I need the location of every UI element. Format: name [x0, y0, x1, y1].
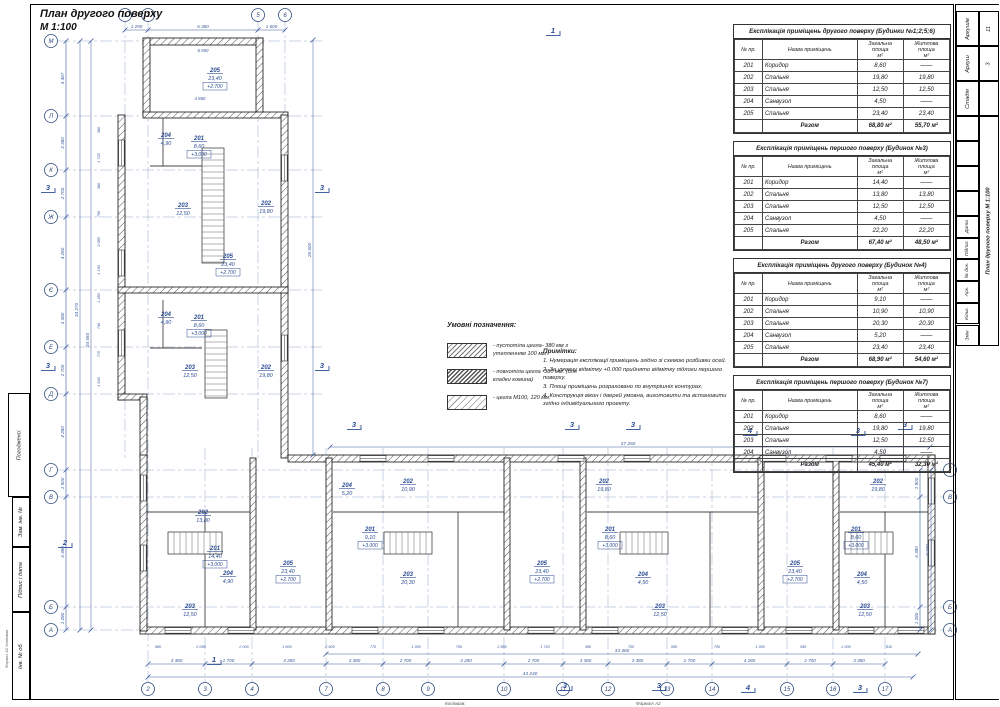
stage-value-cell [979, 81, 999, 116]
table-cell: 19,80 [903, 72, 949, 84]
explication-table-2: Експлікація приміщень першого поверху (Б… [733, 141, 951, 251]
table-row: 201Коридор9,10—— [735, 294, 950, 306]
column-header: № пр. [735, 157, 763, 177]
column-header: Назва приміщень [762, 157, 857, 177]
table-cell: 202 [735, 72, 763, 84]
format-note: Формат А2 Копіював [4, 630, 9, 668]
note-item: 2. За умовну відмітку +0.000 прийнято ві… [543, 366, 735, 383]
explication-table-3: Експлікація приміщень другого поверху (Б… [733, 258, 951, 368]
table-cell: Санвузол [762, 213, 857, 225]
table-cell: Спальня [762, 189, 857, 201]
table-cell: Спальня [762, 318, 857, 330]
format-label: Формат А2 [636, 701, 661, 706]
table-cell: Спальня [762, 201, 857, 213]
column-header: Назва приміщень [762, 274, 857, 294]
table-cell: Спальня [762, 225, 857, 237]
copied-label: Копіював: [445, 701, 465, 706]
table-cell [735, 120, 763, 133]
rev-cell [956, 116, 979, 141]
table-cell: 67,40 м² [857, 237, 903, 250]
table-cell: 12,50 [857, 84, 903, 96]
table-row: 202Спальня10,9010,90 [735, 306, 950, 318]
table-cell: Санвузол [762, 96, 857, 108]
column-header: № пр. [735, 391, 763, 411]
table-cell: 204 [735, 447, 763, 459]
plan-title: План другого поверху [40, 8, 162, 22]
table-row: 204Санвузол5,20—— [735, 330, 950, 342]
table-cell: —— [903, 330, 949, 342]
table-cell: 20,30 [903, 318, 949, 330]
table-cell: 22,20 [903, 225, 949, 237]
table-cell: 4,50 [857, 447, 903, 459]
column-header: Житлова площа м² [903, 157, 949, 177]
table-cell: 8,60 [857, 60, 903, 72]
table-cell: Разом [762, 120, 857, 133]
table-cell: 19,80 [857, 423, 903, 435]
table-cell: 203 [735, 84, 763, 96]
column-header: Загальна площа м² [857, 40, 903, 60]
table-cell: 10,90 [903, 306, 949, 318]
rev-cell [956, 141, 979, 166]
plan-scale: М 1:100 [40, 22, 162, 35]
table-cell: Разом [762, 354, 857, 367]
table-cell: 55,70 м² [903, 120, 949, 133]
table-cell: 205 [735, 108, 763, 120]
column-header: Житлова площа м² [903, 274, 949, 294]
table-cell: Санвузол [762, 330, 857, 342]
sign-date-cell: Підпис і дата [12, 547, 30, 612]
column-header: Загальна площа м² [857, 157, 903, 177]
hatch-swatch-icon [447, 343, 487, 358]
table-cell: 204 [735, 330, 763, 342]
page-title: План другого поверху М 1:100 [40, 8, 162, 34]
rev-column-header: Підпис [956, 238, 979, 260]
table-cell: 203 [735, 201, 763, 213]
table-row: 201Коридор8,60—— [735, 60, 950, 72]
table-cell: Разом [762, 459, 857, 472]
stage-label-cell: Стадія [956, 81, 979, 116]
table-cell: 32,30 м² [903, 459, 949, 472]
note-item: 3. Площі приміщень розраховано по внутрі… [543, 383, 735, 392]
table-cell: 202 [735, 306, 763, 318]
note-item: 4. Конструкція вікон і дверей умовна, ви… [543, 392, 735, 409]
column-header: Житлова площа м² [903, 40, 949, 60]
table-cell [735, 237, 763, 250]
explication-table-4: Експлікація приміщень першого поверху (Б… [733, 375, 951, 473]
rev-column-header: Змін [956, 325, 979, 347]
table-cell: Спальня [762, 435, 857, 447]
table-cell: 4,50 [857, 213, 903, 225]
table-cell: —— [903, 96, 949, 108]
column-header: Назва приміщень [762, 40, 857, 60]
table-cell [735, 459, 763, 472]
hatch-swatch-icon [447, 395, 487, 410]
table-cell: 203 [735, 318, 763, 330]
table-row: 203Спальня12,5012,50 [735, 435, 950, 447]
table-cell: —— [903, 411, 949, 423]
table-cell: Спальня [762, 108, 857, 120]
table-row: 203Спальня12,5012,50 [735, 201, 950, 213]
table-cell: 205 [735, 225, 763, 237]
table-cell: 19,80 [857, 72, 903, 84]
table-cell: 8,60 [857, 411, 903, 423]
table-cell: Санвузол [762, 447, 857, 459]
table-title: Експлікація приміщень другого поверху (Б… [734, 25, 950, 39]
table-title: Експлікація приміщень першого поверху (Б… [734, 376, 950, 390]
explication-table-1: Експлікація приміщень другого поверху (Б… [733, 24, 951, 134]
table-row: 201Коридор8,60—— [735, 411, 950, 423]
table-total-row: Разом68,80 м²55,70 м² [735, 120, 950, 133]
rev-column-header: Кільк. [956, 303, 979, 325]
inv-ob-cell: Інв. № об. [12, 612, 30, 700]
table-cell: 12,50 [903, 201, 949, 213]
table-cell: Коридор [762, 60, 857, 72]
titleblock-title-cell: План другого поверху М 1:100 [979, 116, 999, 346]
table-title: Експлікація приміщень першого поверху (Б… [734, 142, 950, 156]
table-row: 201Коридор14,40—— [735, 177, 950, 189]
table-row: 205Спальня23,4023,40 [735, 342, 950, 354]
table-cell: 201 [735, 411, 763, 423]
table-cell: 23,40 [857, 108, 903, 120]
sheets-value-cell: 11 [979, 11, 999, 46]
table-cell: 9,10 [857, 294, 903, 306]
table-row: 204Санвузол4,50—— [735, 213, 950, 225]
column-header: Назва приміщень [762, 391, 857, 411]
table-cell: 203 [735, 435, 763, 447]
sheets-label-cell: Аркушів [956, 11, 979, 46]
table-cell: —— [903, 294, 949, 306]
approved-cell: Погоджено: [8, 393, 30, 497]
legend-item-label: - цегла М100, 120 мм. [493, 395, 550, 403]
table-cell: 202 [735, 423, 763, 435]
table-cell: 12,50 [903, 84, 949, 96]
table-row: 205Спальня22,2022,20 [735, 225, 950, 237]
title-block-right: Аркушів 11 Аркуш 3 Стадія План другого п… [955, 4, 999, 700]
table-cell: 10,90 [857, 306, 903, 318]
table-cell: Коридор [762, 411, 857, 423]
hatch-swatch-icon [447, 369, 487, 384]
column-header: № пр. [735, 40, 763, 60]
table-row: 202Спальня13,8013,80 [735, 189, 950, 201]
table-row: 203Спальня20,3020,30 [735, 318, 950, 330]
table-row: 202Спальня19,8019,80 [735, 72, 950, 84]
table-cell: 45,40 м² [857, 459, 903, 472]
sheet-value-cell: 3 [979, 46, 999, 81]
table-cell: Коридор [762, 294, 857, 306]
rev-cell [956, 166, 979, 191]
table-cell: Спальня [762, 423, 857, 435]
zam-inv-cell: Зам. інв. № [12, 497, 30, 547]
table-row: 202Спальня19,8019,80 [735, 423, 950, 435]
table-cell: 14,40 [857, 177, 903, 189]
table-row: 203Спальня12,5012,50 [735, 84, 950, 96]
note-item: 1. Нумерація експлікації приміщень згідн… [543, 357, 735, 366]
table-cell: 23,40 [857, 342, 903, 354]
table-cell: 201 [735, 177, 763, 189]
column-header: Загальна площа м² [857, 274, 903, 294]
table-cell: Спальня [762, 306, 857, 318]
sheet-label-cell: Аркуш [956, 46, 979, 81]
table-cell: 12,50 [903, 435, 949, 447]
table-cell: Спальня [762, 84, 857, 96]
table-cell: 54,60 м² [903, 354, 949, 367]
table-cell [735, 354, 763, 367]
table-total-row: Разом68,90 м²54,60 м² [735, 354, 950, 367]
legend-title: Умовні позначення: [447, 322, 577, 329]
table-cell: 201 [735, 60, 763, 72]
table-total-row: Разом45,40 м²32,30 м² [735, 459, 950, 472]
table-cell: 4,50 [857, 96, 903, 108]
explication-tables: Експлікація приміщень другого поверху (Б… [733, 24, 951, 480]
rev-column-header: № док. [956, 259, 979, 281]
table-cell: 12,50 [857, 435, 903, 447]
notes: Примітки: 1. Нумерація експлікації примі… [543, 348, 735, 409]
rev-cell [956, 191, 979, 216]
table-cell: 201 [735, 294, 763, 306]
table-cell: —— [903, 177, 949, 189]
table-cell: 13,80 [903, 189, 949, 201]
table-row: 205Спальня23,4023,40 [735, 108, 950, 120]
table-cell: 19,80 [903, 423, 949, 435]
table-cell: —— [903, 60, 949, 72]
rev-column-header: Дата [956, 216, 979, 238]
table-cell: Разом [762, 237, 857, 250]
table-cell: 204 [735, 213, 763, 225]
rev-column-header: Арк. [956, 281, 979, 303]
notes-title: Примітки: [543, 348, 735, 355]
table-cell: 23,40 [903, 342, 949, 354]
table-cell: 205 [735, 342, 763, 354]
table-cell: 23,40 [903, 108, 949, 120]
column-header: Загальна площа м² [857, 391, 903, 411]
table-cell: 68,90 м² [857, 354, 903, 367]
table-cell: Спальня [762, 342, 857, 354]
table-total-row: Разом67,40 м²48,50 м² [735, 237, 950, 250]
table-cell: 48,50 м² [903, 237, 949, 250]
table-cell: 202 [735, 189, 763, 201]
table-cell: 22,20 [857, 225, 903, 237]
table-row: 204Санвузол4,50—— [735, 96, 950, 108]
column-header: № пр. [735, 274, 763, 294]
table-cell: Спальня [762, 72, 857, 84]
column-header: Житлова площа м² [903, 391, 949, 411]
table-cell: —— [903, 447, 949, 459]
table-cell: Коридор [762, 177, 857, 189]
table-cell: 5,20 [857, 330, 903, 342]
table-cell: 68,80 м² [857, 120, 903, 133]
table-cell: 12,50 [857, 201, 903, 213]
table-title: Експлікація приміщень другого поверху (Б… [734, 259, 950, 273]
table-cell: —— [903, 213, 949, 225]
table-cell: 204 [735, 96, 763, 108]
table-row: 204Санвузол4,50—— [735, 447, 950, 459]
table-cell: 13,80 [857, 189, 903, 201]
table-cell: 20,30 [857, 318, 903, 330]
